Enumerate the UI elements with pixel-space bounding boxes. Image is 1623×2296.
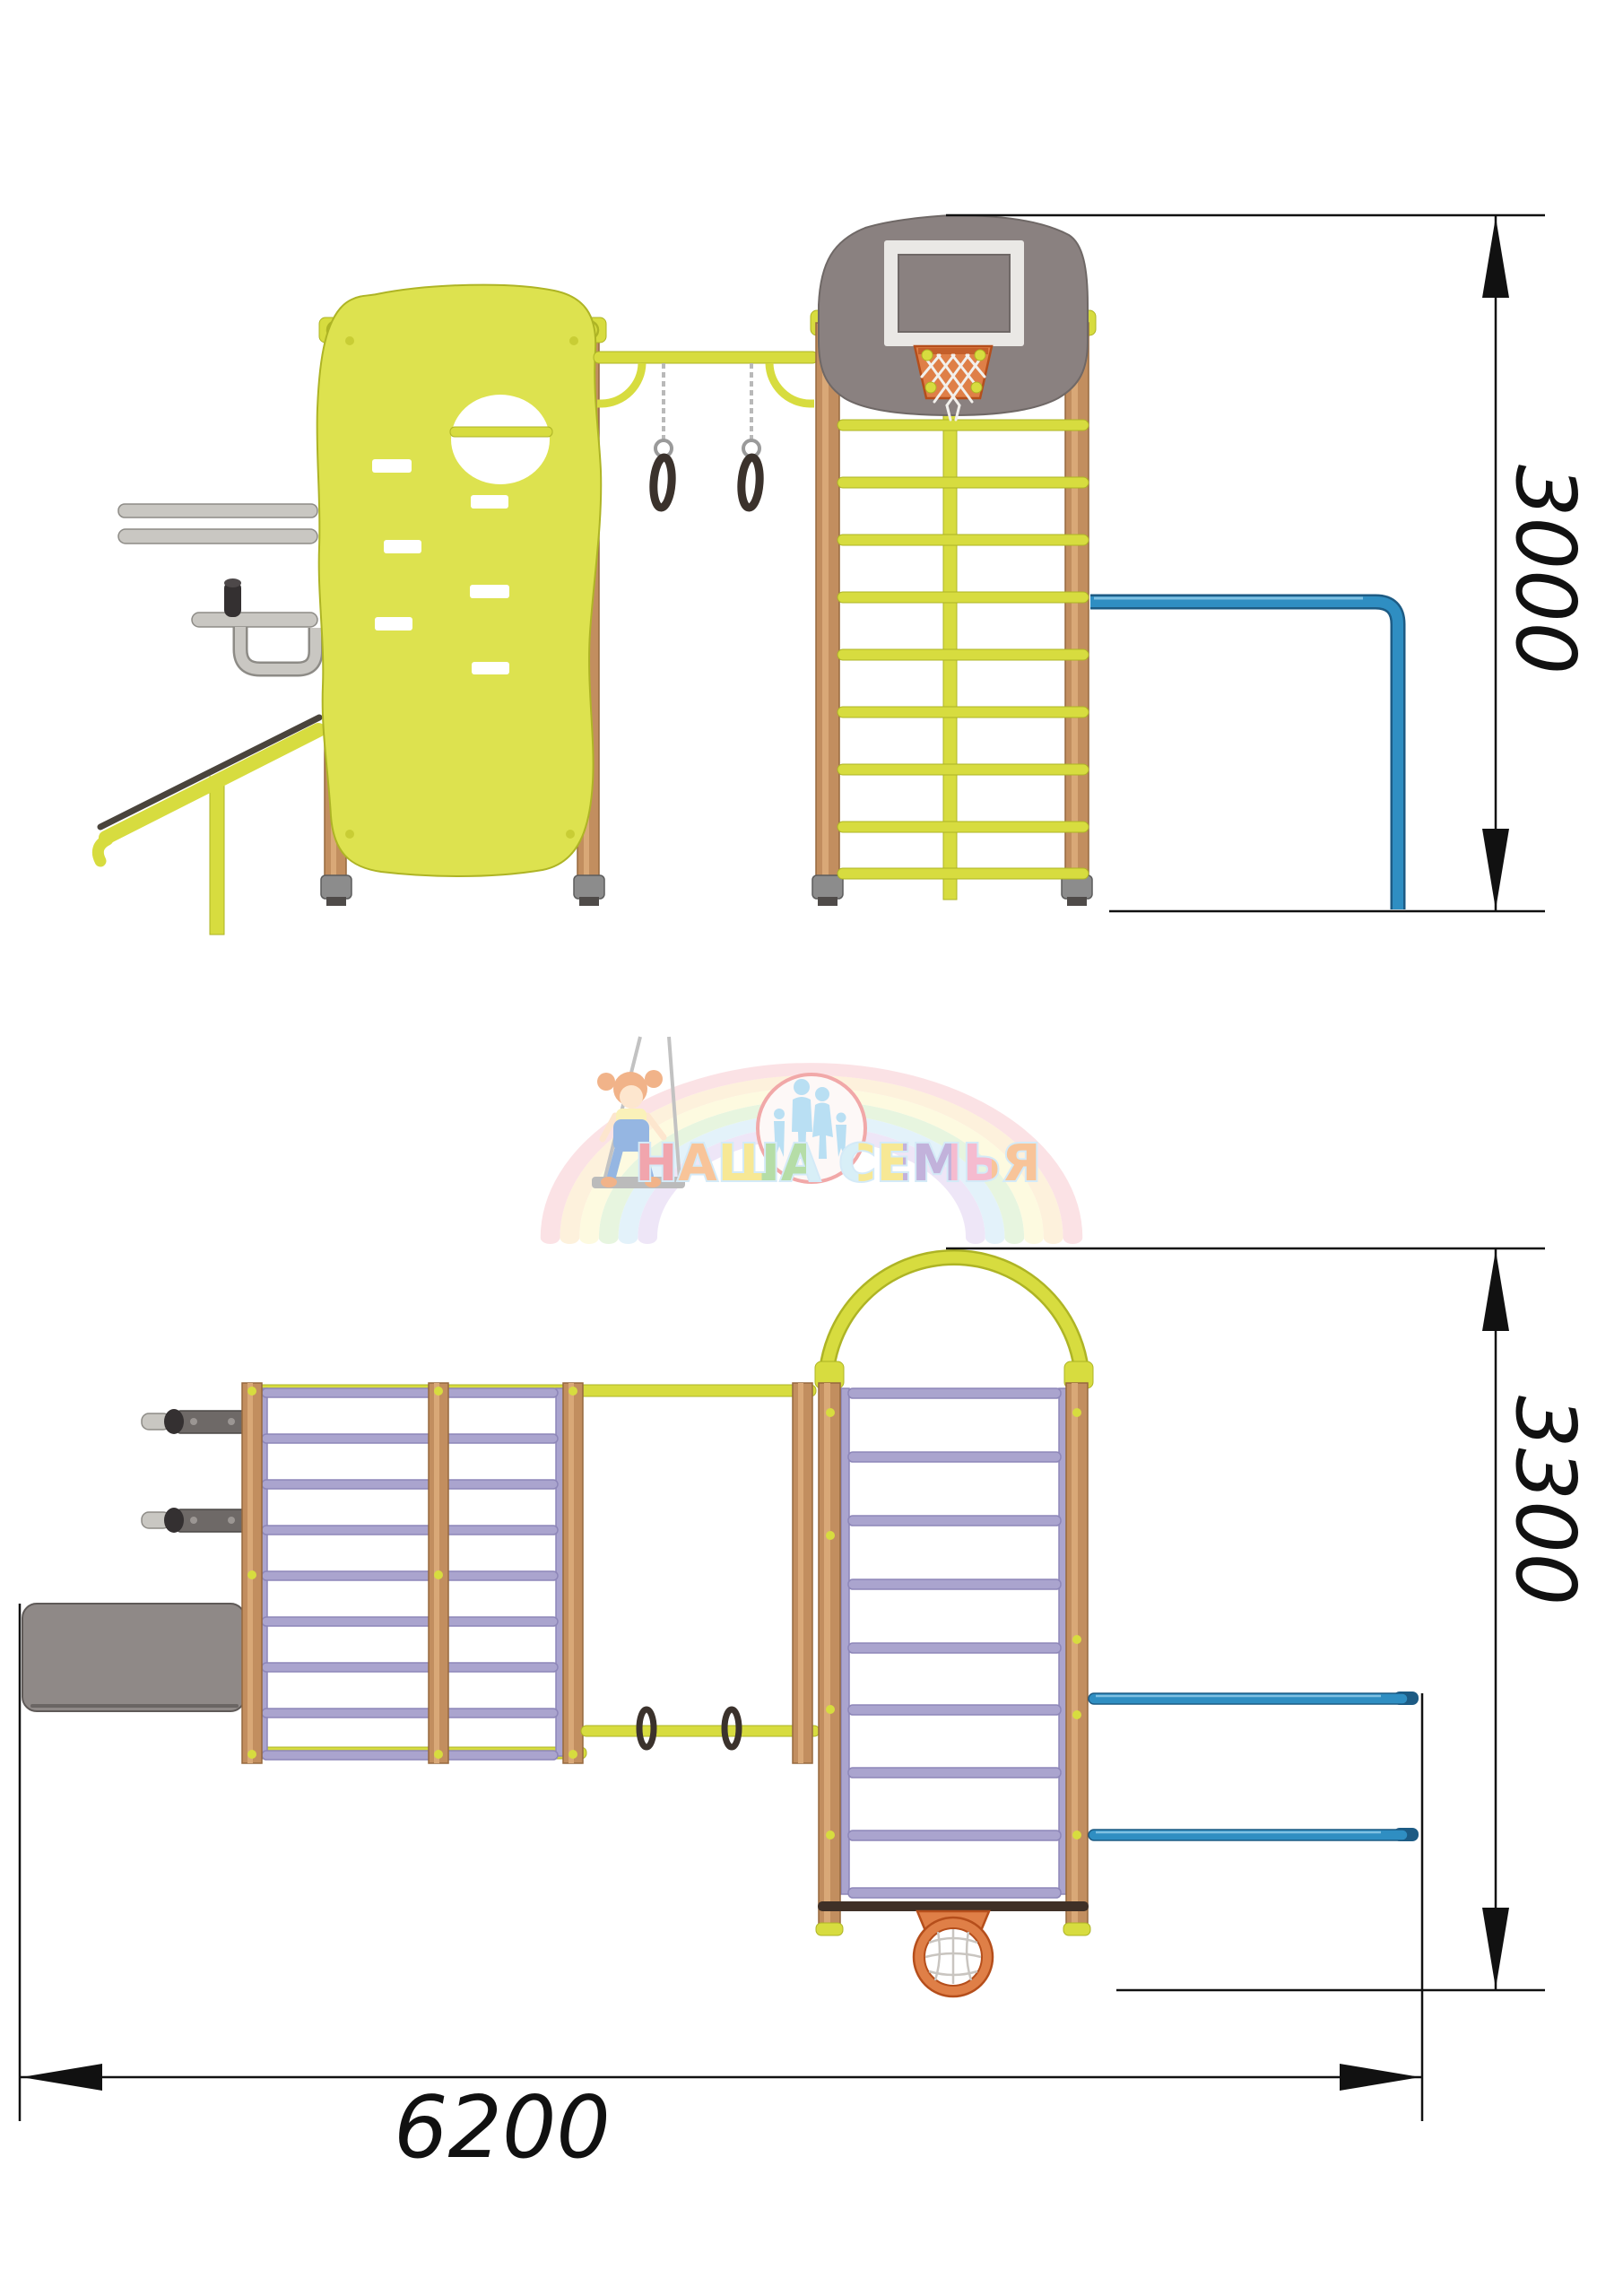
- bracket-rivet: [190, 1517, 197, 1524]
- ladder-rung: [838, 420, 1089, 430]
- wall-screw: [345, 830, 354, 839]
- side-elevation-view: 3000: [98, 215, 1593, 935]
- ladder-rung: [262, 1751, 558, 1760]
- post-bolt: [826, 1408, 835, 1417]
- girl-face: [620, 1085, 643, 1109]
- girl-shoe: [601, 1177, 617, 1187]
- climbing-hold: [471, 495, 508, 509]
- ladder-rung: [848, 1643, 1061, 1653]
- wall-grab-bar: [450, 427, 552, 437]
- gymnastic-ring: [740, 457, 761, 508]
- bracket-knob: [164, 1508, 184, 1533]
- ladder-rung: [848, 1516, 1061, 1526]
- hoop-bolt: [975, 350, 985, 361]
- hoop-bolt: [925, 382, 936, 393]
- bar-support-right: [769, 363, 814, 404]
- dimension-value-width: 6200: [394, 2079, 611, 2178]
- post-foot: [574, 875, 604, 899]
- bar-support-left: [597, 363, 642, 404]
- watermark-logo: НАША СЕМЬЯ: [551, 1037, 1073, 1238]
- dimension-depth-3300: 3300: [946, 1248, 1593, 1990]
- bracket-rivet: [228, 1418, 235, 1425]
- ladder-section-left-plan: [242, 1383, 816, 1763]
- backboard-edge-plan: [818, 1901, 1089, 1911]
- ladder-rung: [262, 1617, 558, 1626]
- rings-bay-plan: [581, 1383, 820, 1763]
- wall-screw: [566, 830, 575, 839]
- hoop-bolt: [971, 382, 982, 393]
- ladder-rung: [262, 1526, 558, 1535]
- basketball-section: [811, 215, 1096, 906]
- backboard-target-inner: [898, 255, 1010, 332]
- climbing-hold: [375, 617, 412, 631]
- climbing-wall-panel: [317, 285, 602, 876]
- ladder-rung: [838, 707, 1089, 717]
- climbing-wall-section: [98, 285, 606, 935]
- rings-bay: [594, 352, 818, 509]
- ladder-rung: [848, 1768, 1061, 1778]
- plan-post-highlight: [824, 1383, 830, 1932]
- bracket-plate: [178, 1411, 247, 1433]
- wall-porthole: [451, 395, 550, 484]
- arch-tube: [826, 1257, 1082, 1386]
- slide-leg: [210, 777, 224, 935]
- ladder-rung: [838, 649, 1089, 660]
- slide-tip: [98, 839, 108, 861]
- post-foot-base: [326, 897, 346, 906]
- dimension-value-depth: 3300: [1497, 1396, 1593, 1605]
- post-bolt: [1072, 1408, 1081, 1417]
- post-bolt: [826, 1831, 835, 1839]
- climbing-hold: [384, 540, 421, 553]
- plan-post-highlight: [1072, 1383, 1078, 1932]
- plan-top-view: 3300 6200: [20, 1248, 1593, 2178]
- slide: [98, 717, 319, 935]
- figure-head: [794, 1079, 810, 1095]
- girl-pigtail: [645, 1070, 663, 1088]
- mount-knob-top: [224, 578, 241, 587]
- ladder-rung: [262, 1480, 558, 1489]
- post-bolt: [826, 1705, 835, 1714]
- ladder-rung: [848, 1888, 1061, 1898]
- post-bolt: [1072, 1831, 1081, 1839]
- bracket-knob: [164, 1409, 184, 1434]
- post-bolt: [1072, 1710, 1081, 1719]
- ladder-rung: [262, 1663, 558, 1672]
- mount-tube: [192, 613, 317, 627]
- arrowhead-down: [1482, 1908, 1509, 1988]
- bracket-rivet: [228, 1517, 235, 1524]
- ladder-rung: [262, 1434, 558, 1443]
- post-foot-base: [818, 897, 838, 906]
- ladder-rungs-plan: [848, 1388, 1061, 1898]
- ladder-rung: [262, 1709, 558, 1718]
- climbing-hold: [472, 662, 509, 674]
- post-bolt: [434, 1570, 443, 1579]
- post-bolt: [434, 1387, 443, 1396]
- post-bottom-cap: [816, 1923, 843, 1935]
- plan-post-highlight: [798, 1383, 803, 1763]
- bracket-rivet: [190, 1418, 197, 1425]
- post-bolt: [826, 1531, 835, 1540]
- high-bar: [1090, 598, 1398, 909]
- ladder-rung: [848, 1705, 1061, 1715]
- ladder-rung: [838, 535, 1089, 545]
- rings-bar-plan: [581, 1726, 820, 1736]
- swedish-wall-rungs: [838, 408, 1089, 900]
- bracket-plate: [178, 1509, 247, 1532]
- high-bar-plan: [1089, 1692, 1419, 1841]
- arrowhead-left: [22, 2064, 102, 2091]
- climbing-hold: [372, 459, 412, 473]
- gymnastic-ring: [652, 457, 673, 508]
- ladder-rung: [838, 764, 1089, 775]
- table-panel-plan: [22, 1604, 245, 1711]
- post-bolt: [434, 1750, 443, 1759]
- arrowhead-up: [1482, 1250, 1509, 1331]
- high-bar-tube: [1090, 602, 1398, 909]
- watermark-brand-text: НАША СЕМЬЯ: [635, 1135, 1041, 1193]
- figure-head: [815, 1087, 829, 1101]
- rings-bar: [594, 352, 818, 363]
- high-bar-outline: [1090, 602, 1398, 909]
- ladder-rung: [838, 477, 1089, 488]
- ladder-rung: [848, 1831, 1061, 1840]
- post-bottom-cap: [1063, 1923, 1090, 1935]
- figure-head: [774, 1109, 785, 1119]
- post-foot: [321, 875, 352, 899]
- basketball-plan: [818, 1901, 1089, 1996]
- ladder-rungs-plan: [262, 1388, 558, 1760]
- ladder-rung: [838, 868, 1089, 879]
- drawing-sheet: 3000: [0, 0, 1623, 2296]
- ladder-rung: [262, 1388, 558, 1397]
- post-foot: [812, 875, 843, 899]
- post-bolt: [1072, 1635, 1081, 1644]
- hoop-bolt: [922, 350, 933, 361]
- girl-pigtail: [597, 1073, 615, 1091]
- arrowhead-right: [1340, 2064, 1420, 2091]
- arrowhead-up: [1482, 217, 1509, 298]
- table-bracket: [118, 504, 317, 669]
- post-bolt: [568, 1387, 577, 1396]
- ladder-rung: [848, 1452, 1061, 1462]
- post-foot-base: [579, 897, 599, 906]
- wall-screw: [345, 336, 354, 345]
- arch-outline: [826, 1257, 1082, 1386]
- arch-ladder-section-plan: [815, 1257, 1093, 1935]
- arrowhead-down: [1482, 829, 1509, 909]
- ladder-rung: [838, 592, 1089, 603]
- post-bolt: [247, 1570, 256, 1579]
- mount-bracket-plan: [142, 1409, 247, 1434]
- wall-screw: [569, 336, 578, 345]
- ladder-rung: [838, 822, 1089, 832]
- ladder-rung: [848, 1388, 1061, 1398]
- mount-bracket-plan: [142, 1508, 247, 1533]
- ladder-rung: [262, 1571, 558, 1580]
- climbing-hold: [470, 585, 509, 598]
- table-top-tube: [118, 504, 317, 517]
- post-bolt: [568, 1750, 577, 1759]
- post-bolt: [247, 1387, 256, 1396]
- figure-head: [837, 1113, 846, 1123]
- plan-post-highlight: [568, 1383, 574, 1763]
- dimension-value-height: 3000: [1497, 465, 1593, 674]
- playground-technical-drawing: 3000: [0, 0, 1623, 2296]
- ladder-post-left-highlight: [822, 323, 829, 883]
- table-bottom-tube: [118, 529, 317, 544]
- post-bolt: [247, 1750, 256, 1759]
- ladder-rung: [848, 1579, 1061, 1589]
- ladder-side-rail: [841, 1388, 849, 1894]
- post-foot-base: [1067, 897, 1087, 906]
